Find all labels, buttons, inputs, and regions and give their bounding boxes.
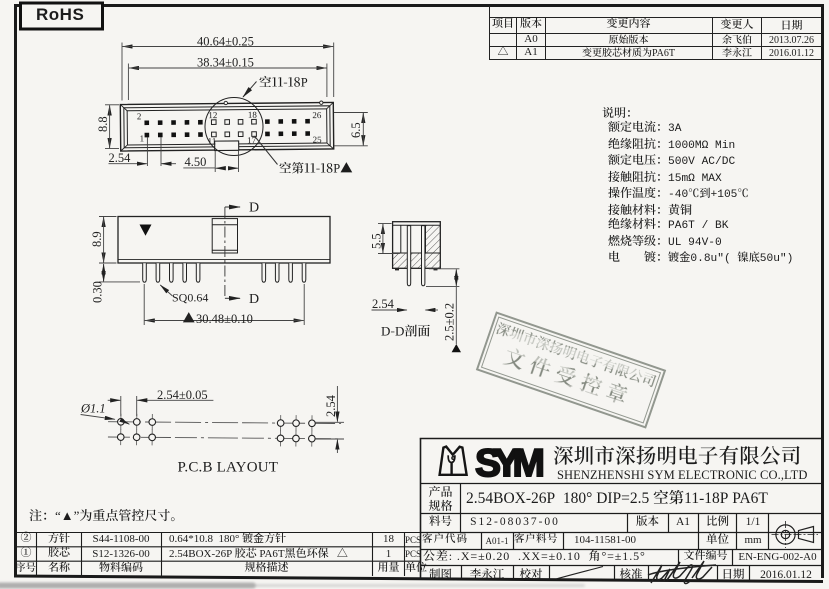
svg-text:2.54±0.05: 2.54±0.05 — [157, 388, 208, 402]
svg-text:6.5: 6.5 — [349, 122, 363, 138]
svg-text:26: 26 — [312, 110, 322, 120]
svg-text:2: 2 — [137, 111, 142, 121]
svg-text:P.C.B LAYOUT: P.C.B LAYOUT — [178, 460, 279, 476]
svg-text:18: 18 — [248, 110, 258, 120]
svg-text:38.34±0.15: 38.34±0.15 — [197, 56, 254, 70]
svg-text:2.5±0.2: 2.5±0.2 — [443, 303, 457, 341]
svg-text:8.9: 8.9 — [90, 231, 104, 247]
svg-text:D: D — [249, 201, 259, 216]
svg-text:D: D — [249, 292, 259, 307]
svg-text:空第11-18P▲: 空第11-18P▲ — [279, 159, 353, 177]
svg-text:SQ0.64: SQ0.64 — [172, 291, 208, 305]
svg-text:4.50: 4.50 — [185, 155, 207, 169]
svg-text:12: 12 — [208, 110, 217, 120]
svg-text:30.48±0.10: 30.48±0.10 — [196, 312, 253, 326]
svg-text:2.54: 2.54 — [324, 394, 338, 417]
svg-text:5.5: 5.5 — [370, 233, 384, 249]
svg-text:SYM: SYM — [475, 442, 545, 485]
svg-text:D-D剖面: D-D剖面 — [381, 321, 430, 340]
svg-text:40.64±0.25: 40.64±0.25 — [197, 35, 254, 49]
svg-text:2.54: 2.54 — [109, 151, 132, 165]
svg-text:1: 1 — [140, 133, 145, 143]
svg-text:2.54: 2.54 — [372, 297, 395, 311]
svg-text:25: 25 — [313, 135, 323, 145]
svg-text:0.30: 0.30 — [91, 281, 105, 303]
svg-text:▲: ▲ — [183, 309, 196, 327]
svg-text:Ø1.1: Ø1.1 — [80, 402, 106, 416]
svg-text:8.8: 8.8 — [96, 116, 110, 132]
svg-text:空11-18P: 空11-18P — [259, 73, 308, 91]
